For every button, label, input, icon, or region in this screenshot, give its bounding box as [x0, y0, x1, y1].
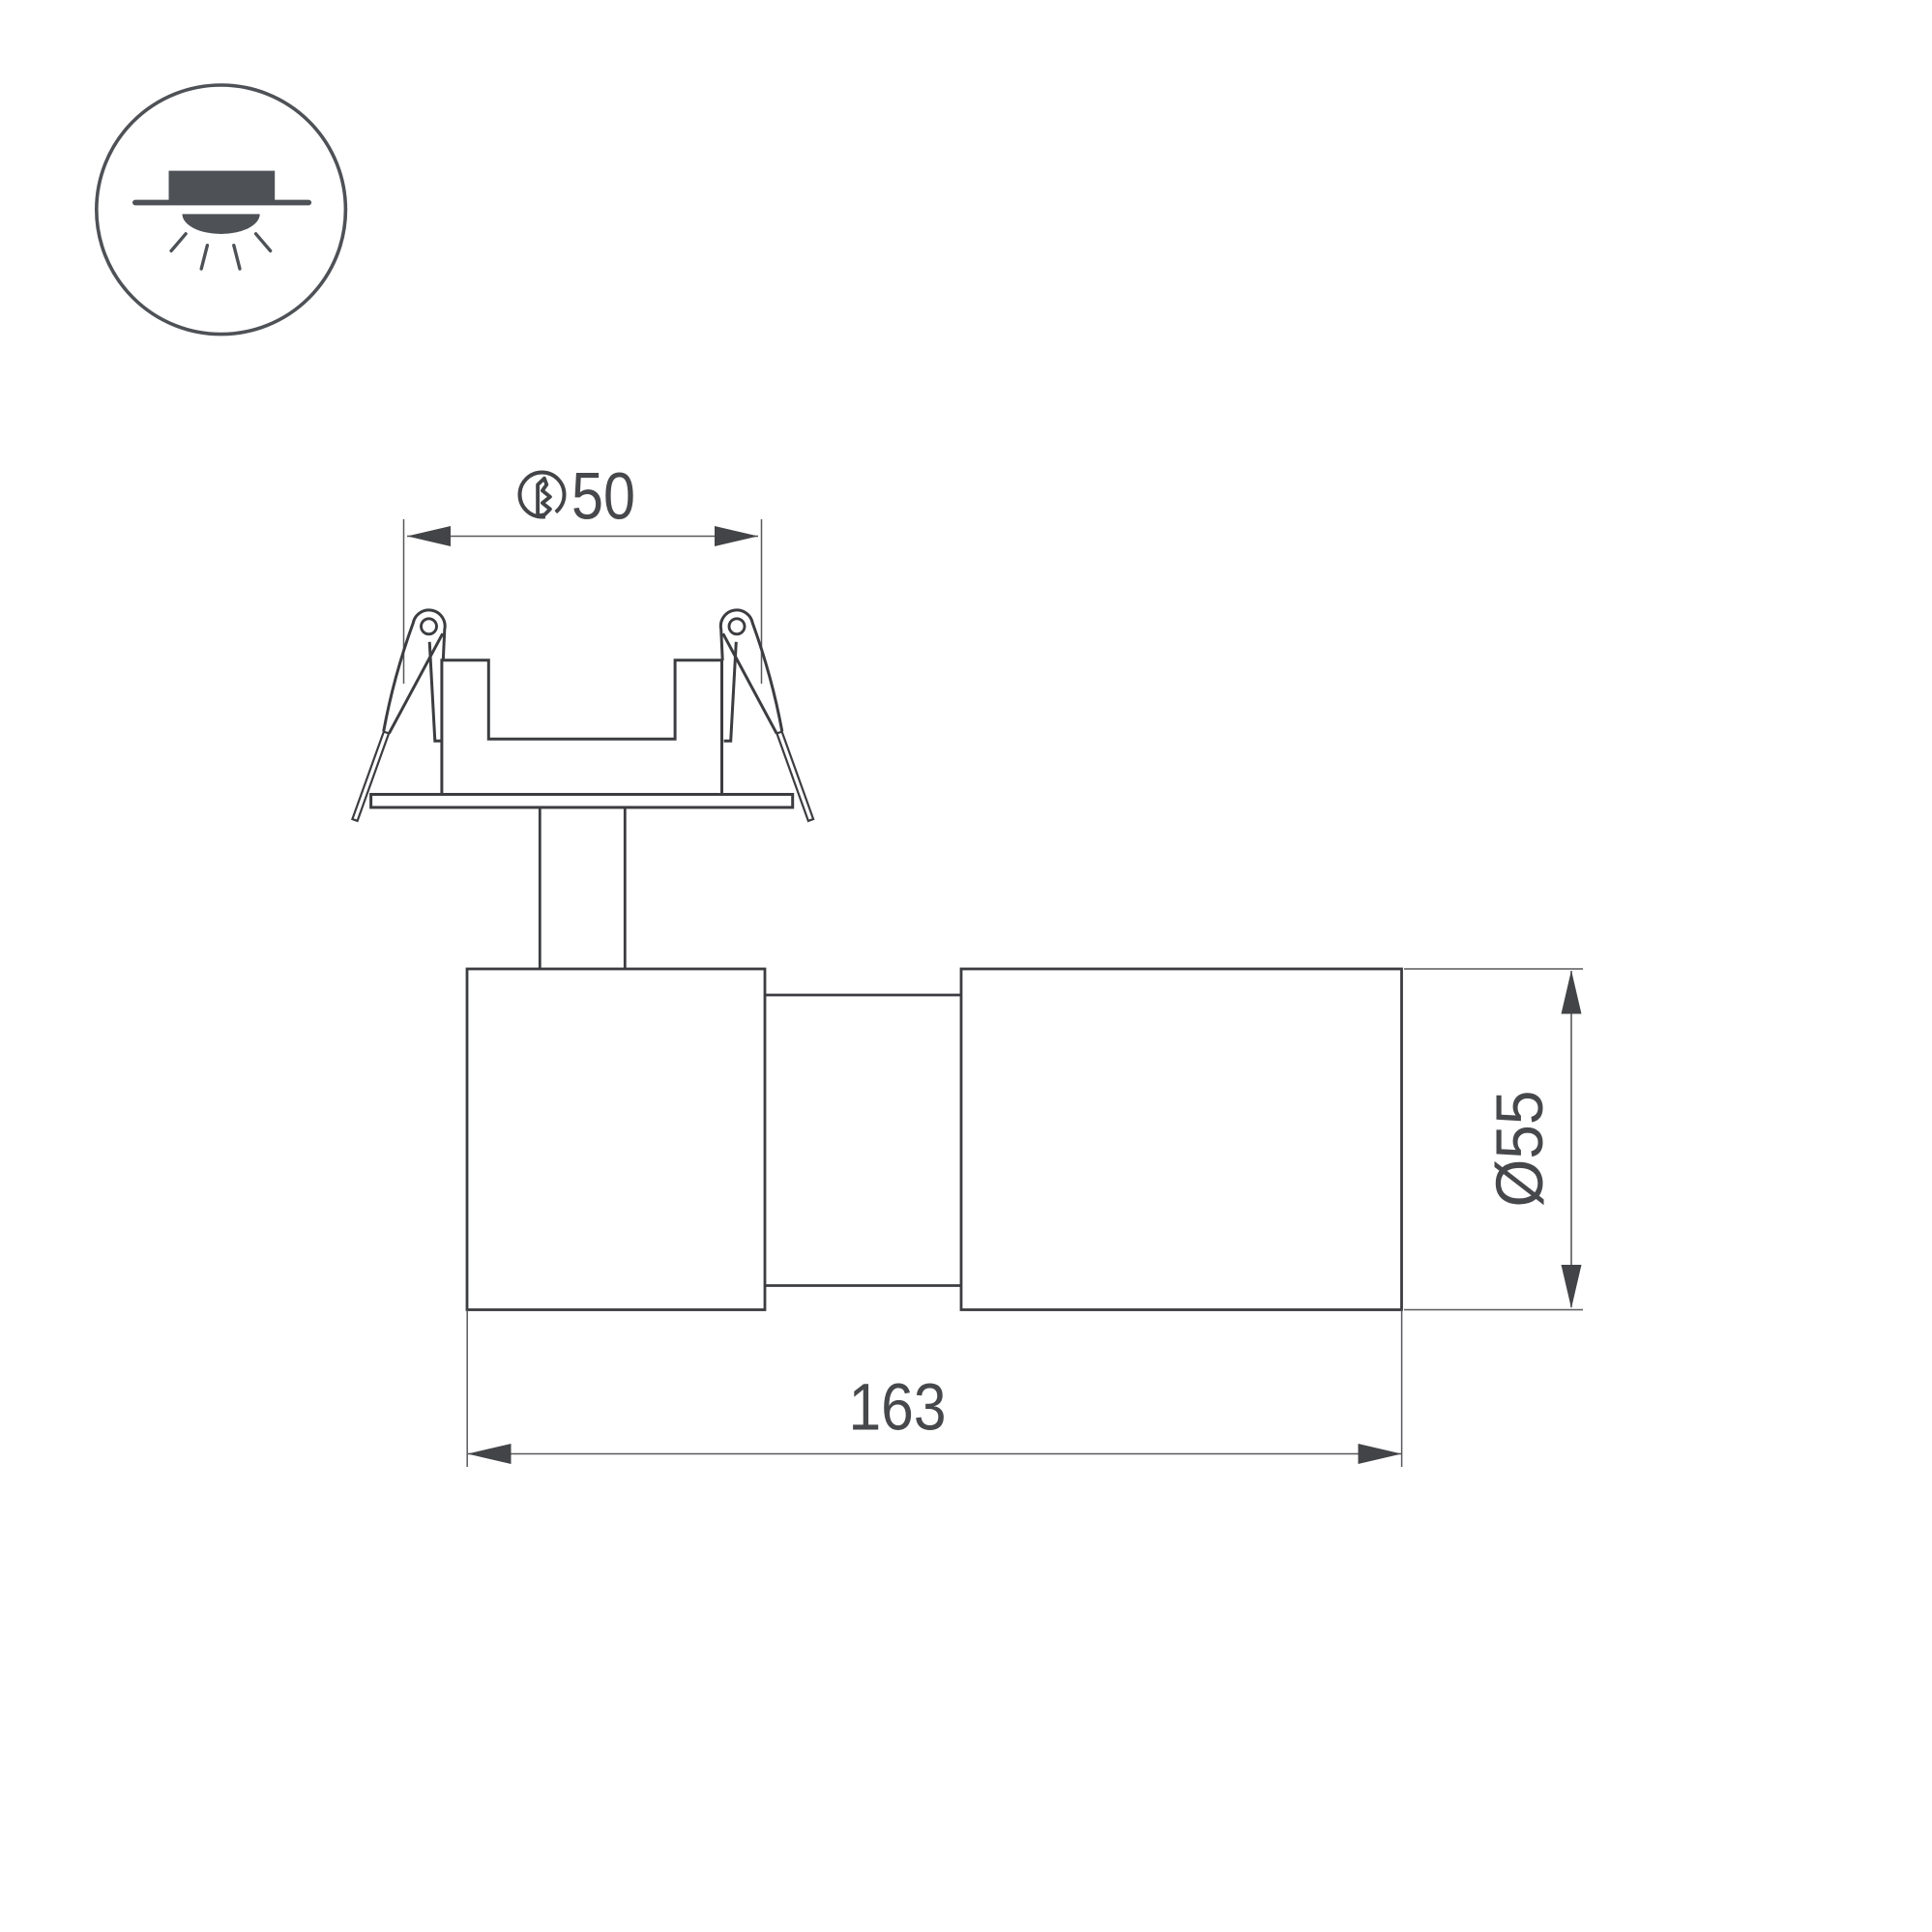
svg-text:50: 50 [571, 459, 635, 534]
svg-text:163: 163 [849, 1370, 947, 1445]
svg-text:Ø55: Ø55 [1482, 1091, 1557, 1208]
